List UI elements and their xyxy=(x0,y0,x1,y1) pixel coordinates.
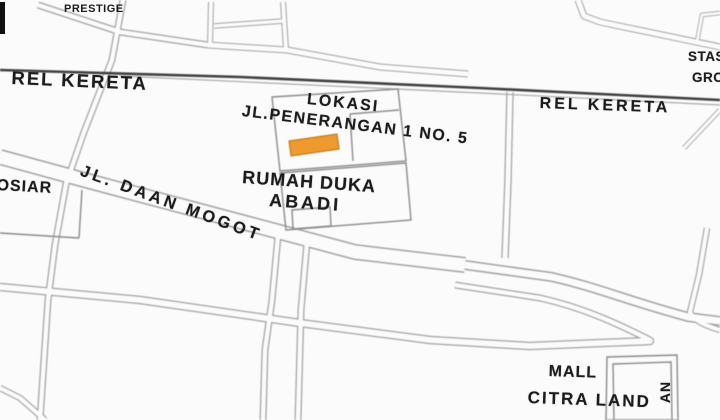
railway-label-right: REL KERETA xyxy=(539,95,670,118)
osiar-label: OSIAR xyxy=(0,177,53,198)
station-label-line1: STAS xyxy=(688,49,720,64)
map-screenshot: PRESTIGE REL KERETA REL KERETA STAS GRO … xyxy=(0,0,720,420)
citra-land-label: CITRA LAND xyxy=(527,388,651,412)
labels-layer: PRESTIGE REL KERETA REL KERETA STAS GRO … xyxy=(0,0,720,420)
prestige-label: PRESTIGE xyxy=(64,3,124,15)
station-label-line2: GRO xyxy=(692,70,720,85)
railway-label-left: REL KERETA xyxy=(11,67,148,95)
daan-mogot-label: JL. DAAN MOGOT xyxy=(78,162,265,246)
vertical-street-label: AN xyxy=(657,375,677,409)
abadi-label: ABADI xyxy=(269,190,342,216)
mall-label: MALL xyxy=(548,363,597,383)
